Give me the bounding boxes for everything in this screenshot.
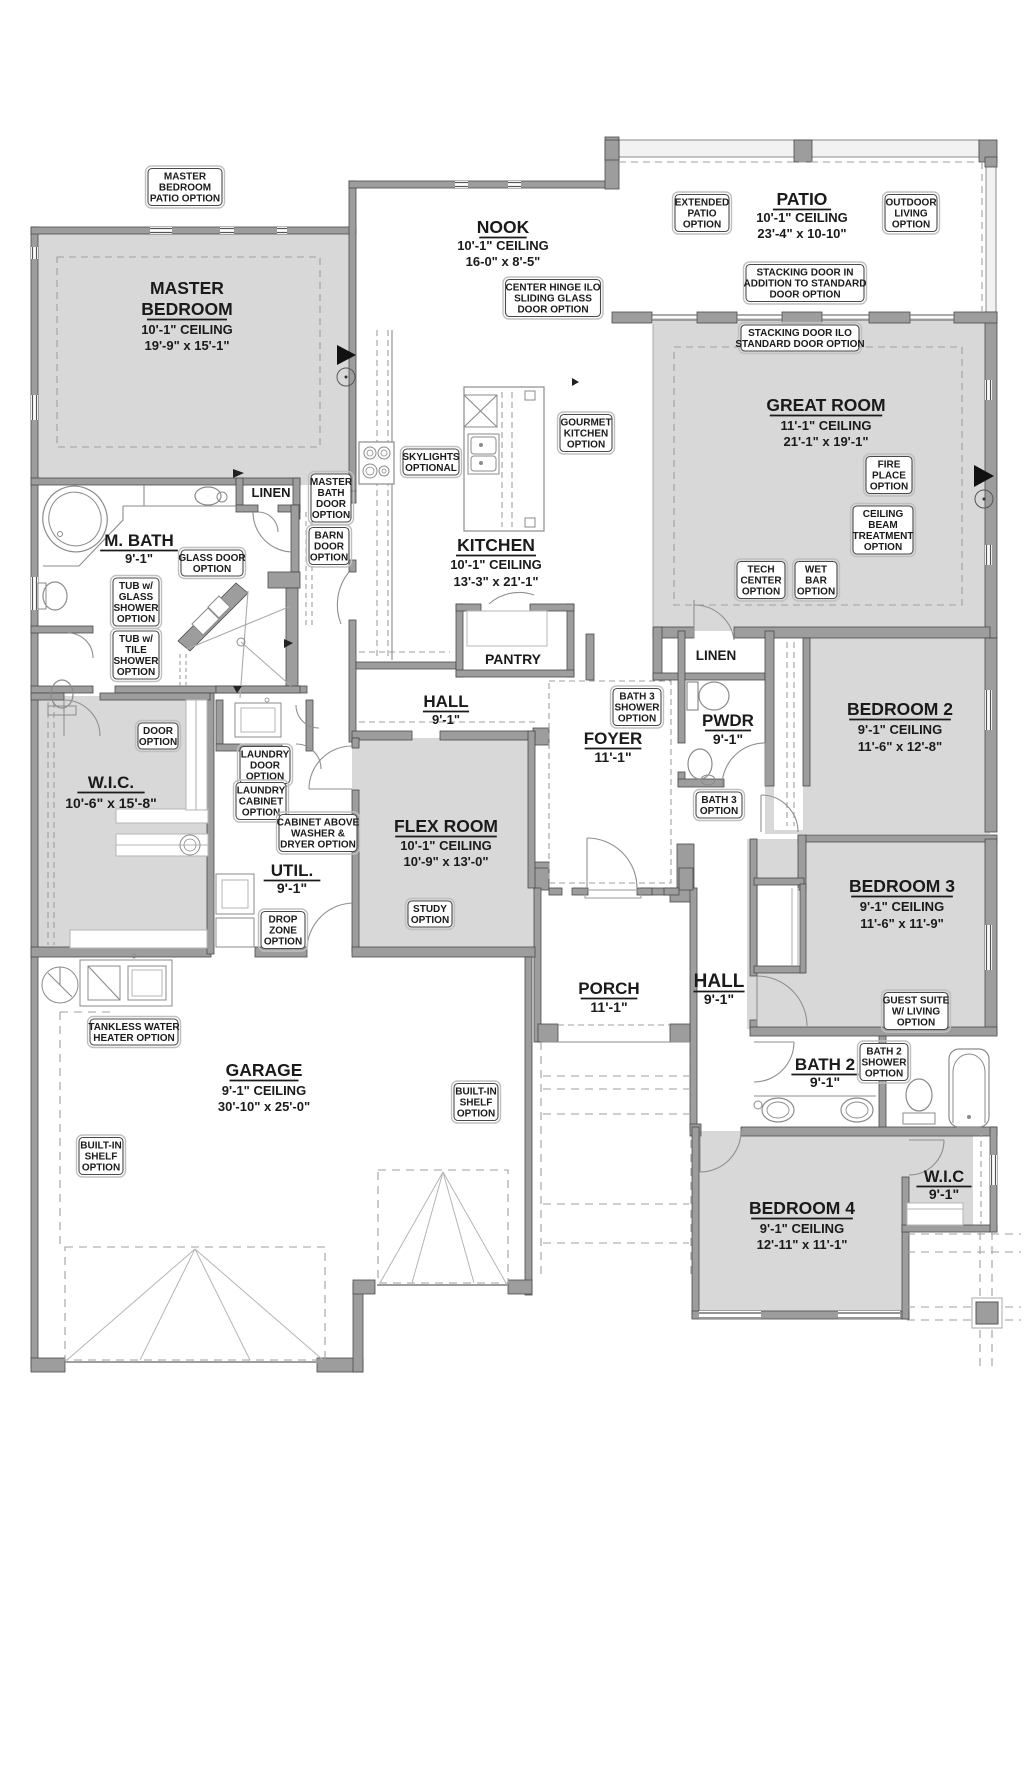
svg-text:TANKLESS WATER: TANKLESS WATER bbox=[88, 1022, 180, 1033]
svg-text:OPTION: OPTION bbox=[567, 440, 605, 451]
svg-text:MASTER: MASTER bbox=[164, 172, 207, 183]
svg-text:PANTRY: PANTRY bbox=[485, 651, 542, 667]
svg-text:OPTION: OPTION bbox=[742, 587, 780, 598]
svg-text:PLACE: PLACE bbox=[872, 471, 906, 482]
svg-text:DOOR: DOOR bbox=[250, 761, 281, 772]
svg-text:SHOWER: SHOWER bbox=[114, 656, 160, 667]
svg-text:LINEN: LINEN bbox=[696, 648, 737, 663]
svg-text:CENTER HINGE ILO: CENTER HINGE ILO bbox=[505, 283, 600, 294]
svg-text:HALL: HALL bbox=[694, 971, 745, 992]
svg-text:11'-1": 11'-1" bbox=[590, 999, 627, 1015]
svg-text:OPTION: OPTION bbox=[864, 542, 902, 553]
svg-text:KITCHEN: KITCHEN bbox=[457, 535, 535, 555]
svg-text:10'-1" CEILING: 10'-1" CEILING bbox=[400, 838, 492, 853]
svg-text:OPTION: OPTION bbox=[870, 482, 908, 493]
svg-text:CEILING: CEILING bbox=[863, 509, 904, 520]
svg-text:11'-1": 11'-1" bbox=[594, 749, 631, 765]
svg-text:9'-1" CEILING: 9'-1" CEILING bbox=[860, 899, 944, 914]
svg-text:HEATER OPTION: HEATER OPTION bbox=[93, 1033, 174, 1044]
svg-text:STUDY: STUDY bbox=[413, 904, 447, 915]
svg-text:9'-1" CEILING: 9'-1" CEILING bbox=[760, 1221, 844, 1236]
svg-text:9'-1": 9'-1" bbox=[432, 712, 460, 727]
svg-text:OPTION: OPTION bbox=[457, 1109, 495, 1120]
svg-text:UTIL.: UTIL. bbox=[271, 861, 314, 880]
svg-text:OPTIONAL: OPTIONAL bbox=[405, 463, 457, 474]
svg-text:19'-9" x 15'-1": 19'-9" x 15'-1" bbox=[144, 338, 229, 353]
svg-text:PATIO: PATIO bbox=[687, 209, 716, 220]
svg-text:GLASS: GLASS bbox=[119, 592, 154, 603]
svg-text:GREAT ROOM: GREAT ROOM bbox=[766, 395, 885, 415]
svg-text:BATH 2: BATH 2 bbox=[866, 1047, 902, 1058]
svg-text:STACKING DOOR ILO: STACKING DOOR ILO bbox=[748, 328, 852, 339]
svg-text:SHOWER: SHOWER bbox=[114, 603, 160, 614]
svg-text:BEDROOM: BEDROOM bbox=[141, 299, 232, 319]
svg-text:9'-1": 9'-1" bbox=[277, 880, 307, 896]
svg-text:PATIO OPTION: PATIO OPTION bbox=[150, 194, 220, 205]
svg-text:TUB w/: TUB w/ bbox=[119, 581, 153, 592]
svg-text:10'-1" CEILING: 10'-1" CEILING bbox=[457, 238, 549, 253]
svg-text:LIVING: LIVING bbox=[894, 209, 928, 220]
svg-text:9'-1": 9'-1" bbox=[929, 1186, 959, 1202]
svg-text:LAUNDRY: LAUNDRY bbox=[241, 750, 290, 761]
svg-text:BUILT-IN: BUILT-IN bbox=[455, 1087, 496, 1098]
svg-text:SLIDING GLASS: SLIDING GLASS bbox=[514, 294, 592, 305]
svg-text:16-0" x 8'-5": 16-0" x 8'-5" bbox=[466, 254, 541, 269]
svg-text:STANDARD DOOR OPTION: STANDARD DOOR OPTION bbox=[735, 339, 864, 350]
svg-text:TECH: TECH bbox=[747, 565, 774, 576]
svg-text:DOOR: DOOR bbox=[314, 542, 345, 553]
svg-text:BATH 2: BATH 2 bbox=[795, 1055, 855, 1074]
svg-text:W.I.C: W.I.C bbox=[924, 1168, 964, 1186]
svg-text:STACKING DOOR IN: STACKING DOOR IN bbox=[756, 268, 853, 279]
svg-text:TUB w/: TUB w/ bbox=[119, 634, 153, 645]
svg-text:WASHER &: WASHER & bbox=[291, 829, 345, 840]
svg-text:MASTER: MASTER bbox=[310, 477, 353, 488]
svg-text:SKYLIGHTS: SKYLIGHTS bbox=[402, 452, 460, 463]
svg-text:9'-1": 9'-1" bbox=[713, 731, 743, 747]
svg-text:WET: WET bbox=[805, 565, 827, 576]
svg-text:10'-6" x 15'-8": 10'-6" x 15'-8" bbox=[65, 795, 157, 811]
svg-text:FLEX ROOM: FLEX ROOM bbox=[394, 816, 498, 836]
svg-text:BEDROOM 2: BEDROOM 2 bbox=[847, 699, 953, 719]
svg-text:21'-1" x 19'-1": 21'-1" x 19'-1" bbox=[783, 434, 868, 449]
svg-text:OPTION: OPTION bbox=[797, 587, 835, 598]
svg-text:OUTDOOR: OUTDOOR bbox=[885, 198, 937, 209]
svg-text:BATH: BATH bbox=[317, 488, 344, 499]
svg-text:10'-1" CEILING: 10'-1" CEILING bbox=[450, 557, 542, 572]
svg-text:11'-6" x 12'-8": 11'-6" x 12'-8" bbox=[858, 739, 942, 754]
svg-text:DRYER OPTION: DRYER OPTION bbox=[280, 840, 356, 851]
svg-text:W/ LIVING: W/ LIVING bbox=[892, 1007, 941, 1018]
svg-text:30'-10" x 25'-0": 30'-10" x 25'-0" bbox=[218, 1099, 310, 1114]
svg-text:OPTION: OPTION bbox=[310, 553, 348, 564]
svg-text:DOOR OPTION: DOOR OPTION bbox=[769, 290, 840, 301]
svg-text:OPTION: OPTION bbox=[242, 808, 280, 819]
svg-text:OPTION: OPTION bbox=[897, 1018, 935, 1029]
svg-text:KITCHEN: KITCHEN bbox=[564, 429, 608, 440]
svg-text:TILE: TILE bbox=[125, 645, 147, 656]
svg-text:10'-1" CEILING: 10'-1" CEILING bbox=[756, 210, 848, 225]
svg-text:OPTION: OPTION bbox=[892, 220, 930, 231]
svg-text:BATH 3: BATH 3 bbox=[701, 795, 737, 806]
svg-text:OPTION: OPTION bbox=[865, 1069, 903, 1080]
svg-text:FIRE: FIRE bbox=[878, 460, 901, 471]
svg-text:23'-4" x 10-10": 23'-4" x 10-10" bbox=[757, 226, 846, 241]
svg-text:13'-3" x 21'-1": 13'-3" x 21'-1" bbox=[453, 574, 538, 589]
svg-text:9'-1" CEILING: 9'-1" CEILING bbox=[858, 722, 942, 737]
svg-text:LINEN: LINEN bbox=[252, 485, 291, 500]
svg-text:GARAGE: GARAGE bbox=[226, 1060, 303, 1080]
svg-text:GLASS DOOR: GLASS DOOR bbox=[178, 553, 246, 564]
svg-text:9'-1": 9'-1" bbox=[704, 991, 734, 1007]
svg-text:OPTION: OPTION bbox=[411, 915, 449, 926]
svg-text:BAR: BAR bbox=[805, 576, 827, 587]
svg-text:9'-1" CEILING: 9'-1" CEILING bbox=[222, 1083, 306, 1098]
svg-text:11'-1" CEILING: 11'-1" CEILING bbox=[781, 418, 872, 433]
svg-text:M. BATH: M. BATH bbox=[104, 531, 174, 550]
svg-text:TREATMENT: TREATMENT bbox=[853, 531, 914, 542]
svg-text:BEDROOM 4: BEDROOM 4 bbox=[749, 1198, 855, 1218]
svg-text:OPTION: OPTION bbox=[683, 220, 721, 231]
svg-text:SHELF: SHELF bbox=[460, 1098, 493, 1109]
svg-text:SHOWER: SHOWER bbox=[862, 1058, 908, 1069]
svg-text:BEDROOM: BEDROOM bbox=[159, 183, 211, 194]
svg-text:OPTION: OPTION bbox=[82, 1163, 120, 1174]
svg-text:11'-6" x 11'-9": 11'-6" x 11'-9" bbox=[860, 916, 944, 931]
svg-text:LAUNDRY: LAUNDRY bbox=[237, 786, 286, 797]
svg-text:BUILT-IN: BUILT-IN bbox=[80, 1141, 121, 1152]
svg-text:SHOWER: SHOWER bbox=[615, 703, 661, 714]
svg-text:BATH 3: BATH 3 bbox=[619, 692, 655, 703]
svg-text:DOOR: DOOR bbox=[316, 499, 347, 510]
svg-text:PATIO: PATIO bbox=[777, 189, 828, 209]
svg-text:9'-1": 9'-1" bbox=[810, 1074, 840, 1090]
svg-text:DOOR OPTION: DOOR OPTION bbox=[517, 305, 588, 316]
svg-text:OPTION: OPTION bbox=[700, 806, 738, 817]
svg-text:BEDROOM 3: BEDROOM 3 bbox=[849, 876, 955, 896]
svg-text:OPTION: OPTION bbox=[193, 564, 231, 575]
svg-text:HALL: HALL bbox=[423, 692, 468, 711]
svg-text:BEAM: BEAM bbox=[868, 520, 897, 531]
svg-text:ZONE: ZONE bbox=[269, 926, 297, 937]
svg-text:OPTION: OPTION bbox=[117, 614, 155, 625]
svg-text:GOURMET: GOURMET bbox=[560, 418, 611, 429]
svg-text:OPTION: OPTION bbox=[264, 937, 302, 948]
svg-text:OPTION: OPTION bbox=[618, 714, 656, 725]
svg-text:FOYER: FOYER bbox=[584, 729, 643, 748]
svg-text:SHELF: SHELF bbox=[85, 1152, 118, 1163]
svg-text:10'-1" CEILING: 10'-1" CEILING bbox=[141, 322, 233, 337]
svg-text:9'-1": 9'-1" bbox=[125, 551, 153, 566]
svg-text:CABINET: CABINET bbox=[239, 797, 283, 808]
svg-text:EXTENDED: EXTENDED bbox=[675, 198, 729, 209]
svg-text:ADDITION TO STANDARD: ADDITION TO STANDARD bbox=[744, 279, 867, 290]
svg-text:W.I.C.: W.I.C. bbox=[88, 773, 134, 792]
svg-text:GUEST SUITE: GUEST SUITE bbox=[883, 996, 950, 1007]
svg-text:CABINET ABOVE: CABINET ABOVE bbox=[277, 818, 360, 829]
svg-text:OPTION: OPTION bbox=[312, 510, 350, 521]
svg-text:MASTER: MASTER bbox=[150, 278, 224, 298]
svg-text:10'-9" x 13'-0": 10'-9" x 13'-0" bbox=[403, 854, 488, 869]
svg-text:12'-11" x 11'-1": 12'-11" x 11'-1" bbox=[757, 1237, 848, 1252]
svg-text:DROP: DROP bbox=[269, 915, 298, 926]
svg-text:OPTION: OPTION bbox=[117, 667, 155, 678]
svg-text:PORCH: PORCH bbox=[578, 979, 639, 998]
svg-text:NOOK: NOOK bbox=[477, 217, 530, 237]
svg-text:DOOR: DOOR bbox=[143, 726, 174, 737]
svg-text:CENTER: CENTER bbox=[740, 576, 782, 587]
svg-text:PWDR: PWDR bbox=[702, 711, 754, 730]
svg-text:BARN: BARN bbox=[315, 531, 344, 542]
svg-text:OPTION: OPTION bbox=[246, 772, 284, 783]
svg-text:OPTION: OPTION bbox=[139, 737, 177, 748]
